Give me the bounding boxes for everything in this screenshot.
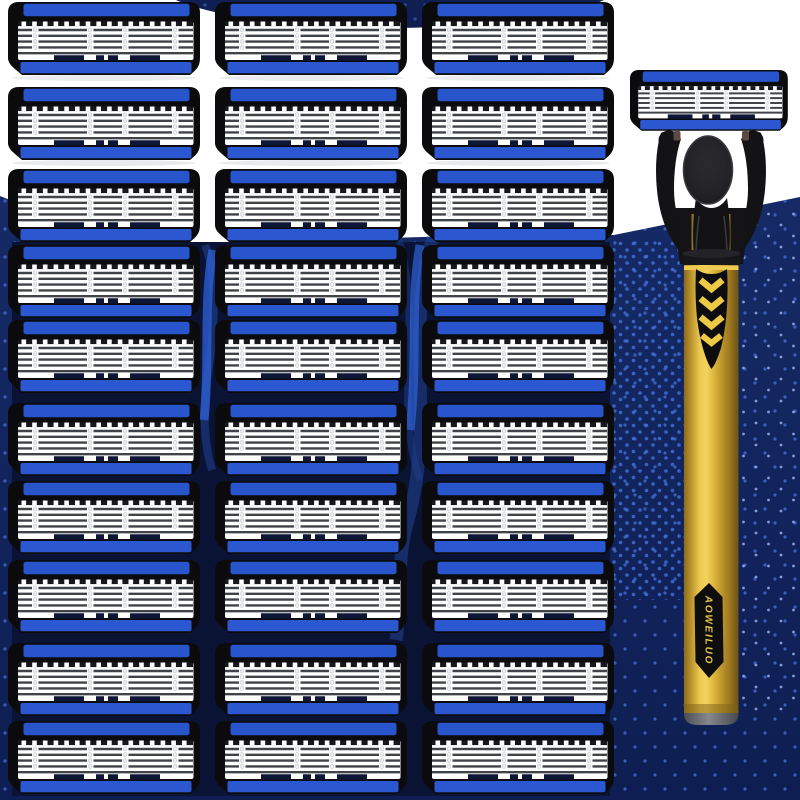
svg-text:AOWEILUO: AOWEILUO — [703, 595, 714, 665]
